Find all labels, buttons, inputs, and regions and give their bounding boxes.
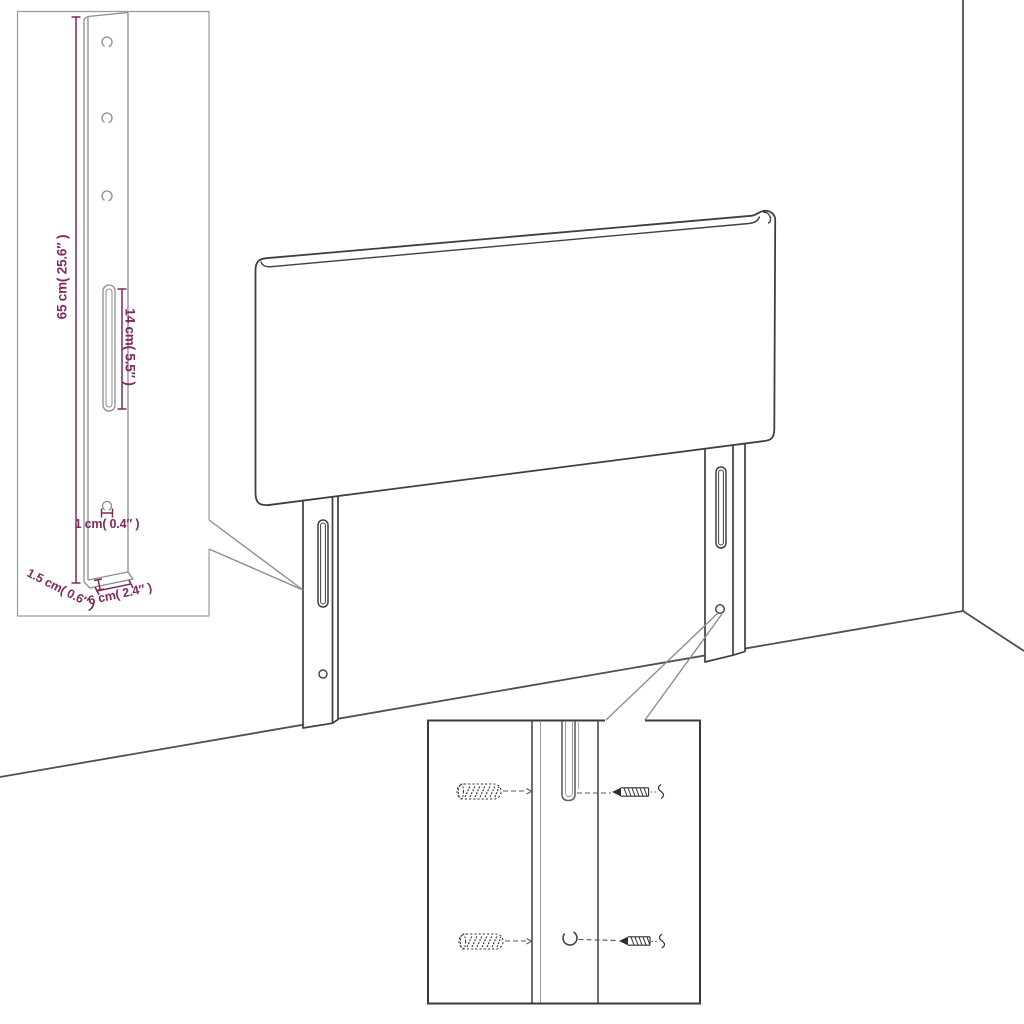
headboard-right-leg bbox=[705, 433, 745, 662]
headboard-panel bbox=[256, 211, 776, 505]
dim-label-bracket-height: 65 cm( 25.6″ ) bbox=[55, 235, 70, 320]
dim-label-hole-diameter: 1 cm( 0.4″ ) bbox=[75, 517, 140, 531]
screw-inset-border bbox=[428, 721, 700, 1004]
right-leg-screw-hole bbox=[716, 605, 725, 614]
headboard-left-leg bbox=[303, 487, 338, 728]
screw-detail-inset bbox=[428, 721, 700, 1004]
diagram-line-art bbox=[0, 0, 1024, 1024]
product-dimension-diagram: 65 cm( 25.6″ ) 14 cm( 5.5″ ) 1 cm( 0.4″ … bbox=[0, 0, 1024, 1024]
dim-label-slot-length: 14 cm( 5.5″ ) bbox=[123, 308, 138, 385]
left-inset-callout-lines bbox=[209, 520, 303, 590]
left-leg-screw-hole bbox=[319, 670, 327, 678]
floor-line-right bbox=[963, 611, 1024, 651]
